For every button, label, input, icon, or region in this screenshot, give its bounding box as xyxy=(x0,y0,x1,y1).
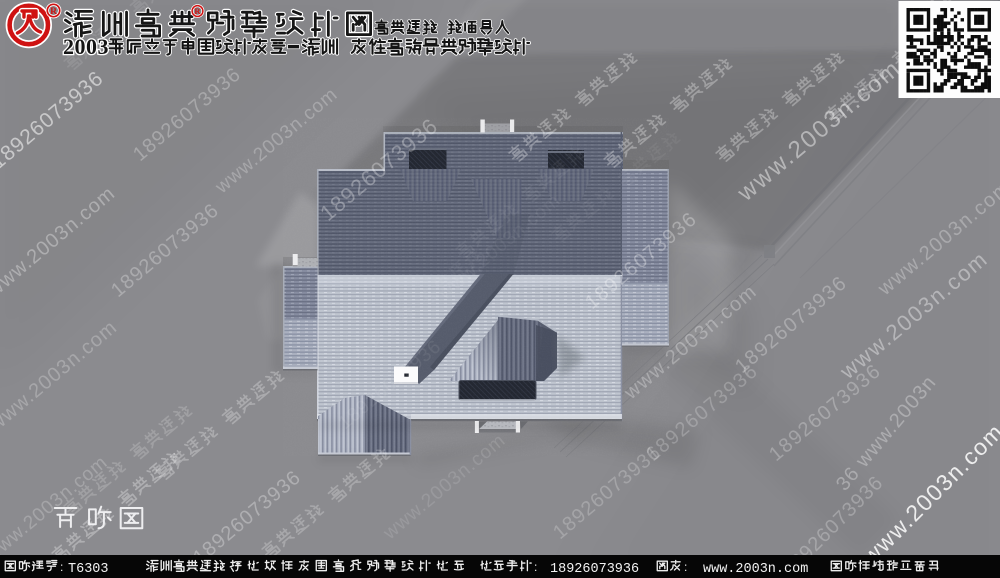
svg-text:R: R xyxy=(50,7,57,17)
svg-text:18926073936: 18926073936 xyxy=(550,562,639,577)
svg-text:R: R xyxy=(194,6,201,16)
svg-text::: : xyxy=(534,560,537,574)
svg-text:2003: 2003 xyxy=(63,34,109,59)
svg-text::: : xyxy=(60,560,63,574)
svg-text:T6303: T6303 xyxy=(68,562,109,577)
svg-text::: : xyxy=(684,560,687,574)
svg-text:www.2003n.com: www.2003n.com xyxy=(703,562,808,577)
